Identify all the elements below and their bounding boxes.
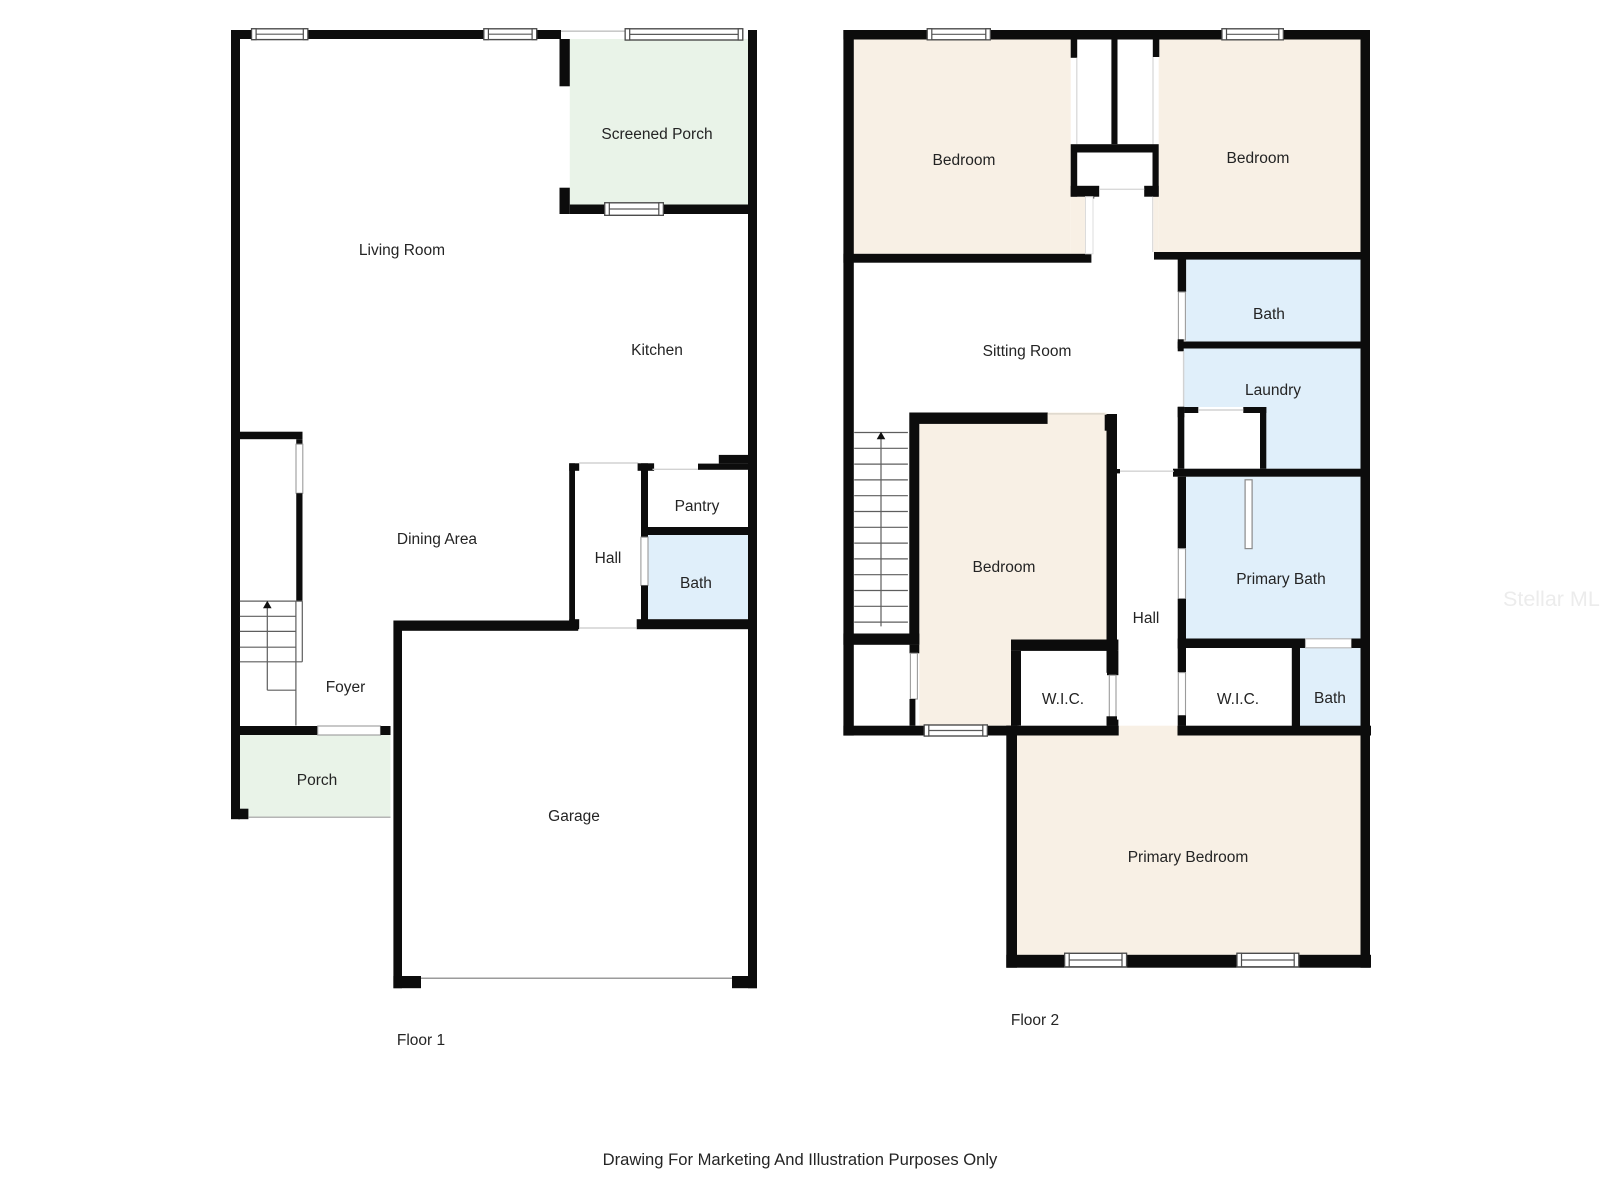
svg-text:Drawing For Marketing And Illu: Drawing For Marketing And Illustration P… [603, 1150, 998, 1169]
svg-text:Sitting Room: Sitting Room [983, 343, 1072, 360]
svg-text:W.I.C.: W.I.C. [1217, 691, 1259, 708]
svg-text:Bath: Bath [680, 575, 712, 592]
svg-text:Bedroom: Bedroom [973, 559, 1036, 576]
svg-text:Garage: Garage [548, 808, 600, 825]
svg-text:Porch: Porch [297, 772, 338, 789]
svg-text:Hall: Hall [595, 550, 622, 567]
svg-text:W.I.C.: W.I.C. [1042, 691, 1084, 708]
svg-text:Primary Bath: Primary Bath [1236, 571, 1326, 588]
svg-text:Floor 2: Floor 2 [1011, 1012, 1059, 1029]
svg-text:Living Room: Living Room [359, 242, 445, 259]
svg-text:Foyer: Foyer [326, 679, 366, 696]
svg-text:Floor 1: Floor 1 [397, 1032, 445, 1049]
svg-text:Primary Bedroom: Primary Bedroom [1128, 849, 1249, 866]
svg-text:Hall: Hall [1133, 610, 1160, 627]
svg-text:Bath: Bath [1253, 306, 1285, 323]
svg-text:Bath: Bath [1314, 690, 1346, 707]
svg-text:Laundry: Laundry [1245, 382, 1301, 399]
svg-text:Pantry: Pantry [675, 498, 720, 515]
svg-text:Screened Porch: Screened Porch [601, 126, 712, 143]
svg-text:Dining Area: Dining Area [397, 531, 478, 548]
svg-text:Kitchen: Kitchen [631, 342, 683, 359]
svg-text:Bedroom: Bedroom [1227, 150, 1290, 167]
svg-text:Bedroom: Bedroom [933, 152, 996, 169]
svg-text:Stellar MLS: Stellar MLS [1503, 587, 1600, 611]
